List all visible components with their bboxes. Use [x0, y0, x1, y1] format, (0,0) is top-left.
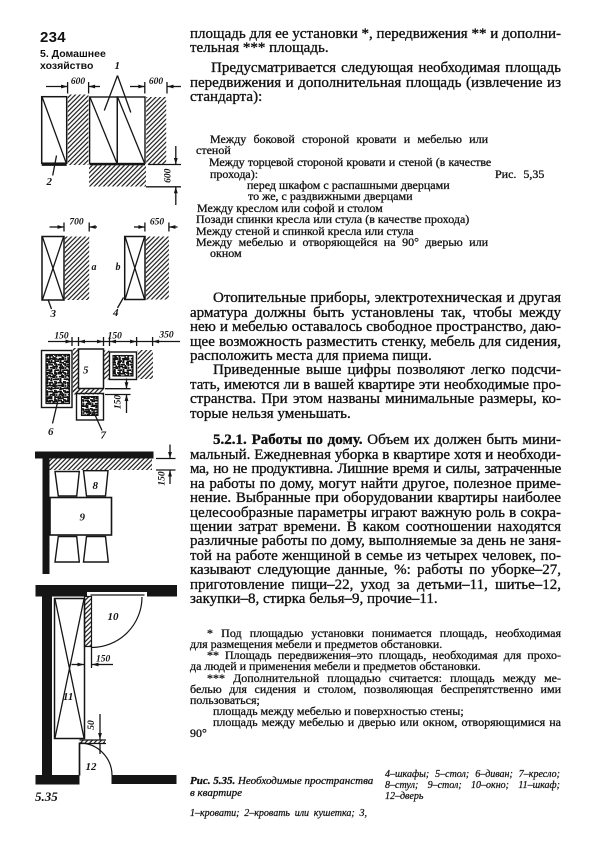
svg-text:11: 11 [63, 691, 73, 703]
svg-text:600: 600 [164, 168, 174, 183]
svg-text:150: 150 [96, 655, 111, 665]
svg-text:150: 150 [54, 332, 69, 342]
svg-text:50: 50 [87, 720, 97, 730]
svg-text:2: 2 [46, 176, 53, 188]
svg-text:b: b [116, 262, 121, 273]
svg-text:350: 350 [158, 331, 174, 341]
svg-text:600: 600 [149, 77, 164, 87]
svg-text:10: 10 [108, 611, 120, 623]
svg-text:700: 700 [69, 218, 84, 228]
svg-text:5: 5 [83, 365, 89, 377]
svg-text:12: 12 [86, 761, 98, 773]
svg-text:9: 9 [80, 512, 86, 524]
svg-text:150: 150 [158, 471, 168, 486]
svg-text:600: 600 [71, 77, 86, 87]
svg-text:650: 650 [150, 218, 165, 228]
svg-text:7: 7 [101, 430, 107, 442]
svg-text:150: 150 [108, 332, 123, 342]
svg-text:8: 8 [93, 480, 99, 492]
svg-text:3: 3 [50, 308, 57, 320]
svg-text:6: 6 [48, 426, 54, 438]
svg-text:a: a [92, 262, 97, 273]
svg-text:1: 1 [115, 60, 121, 72]
svg-text:150: 150 [114, 395, 124, 410]
svg-text:4: 4 [112, 307, 119, 319]
